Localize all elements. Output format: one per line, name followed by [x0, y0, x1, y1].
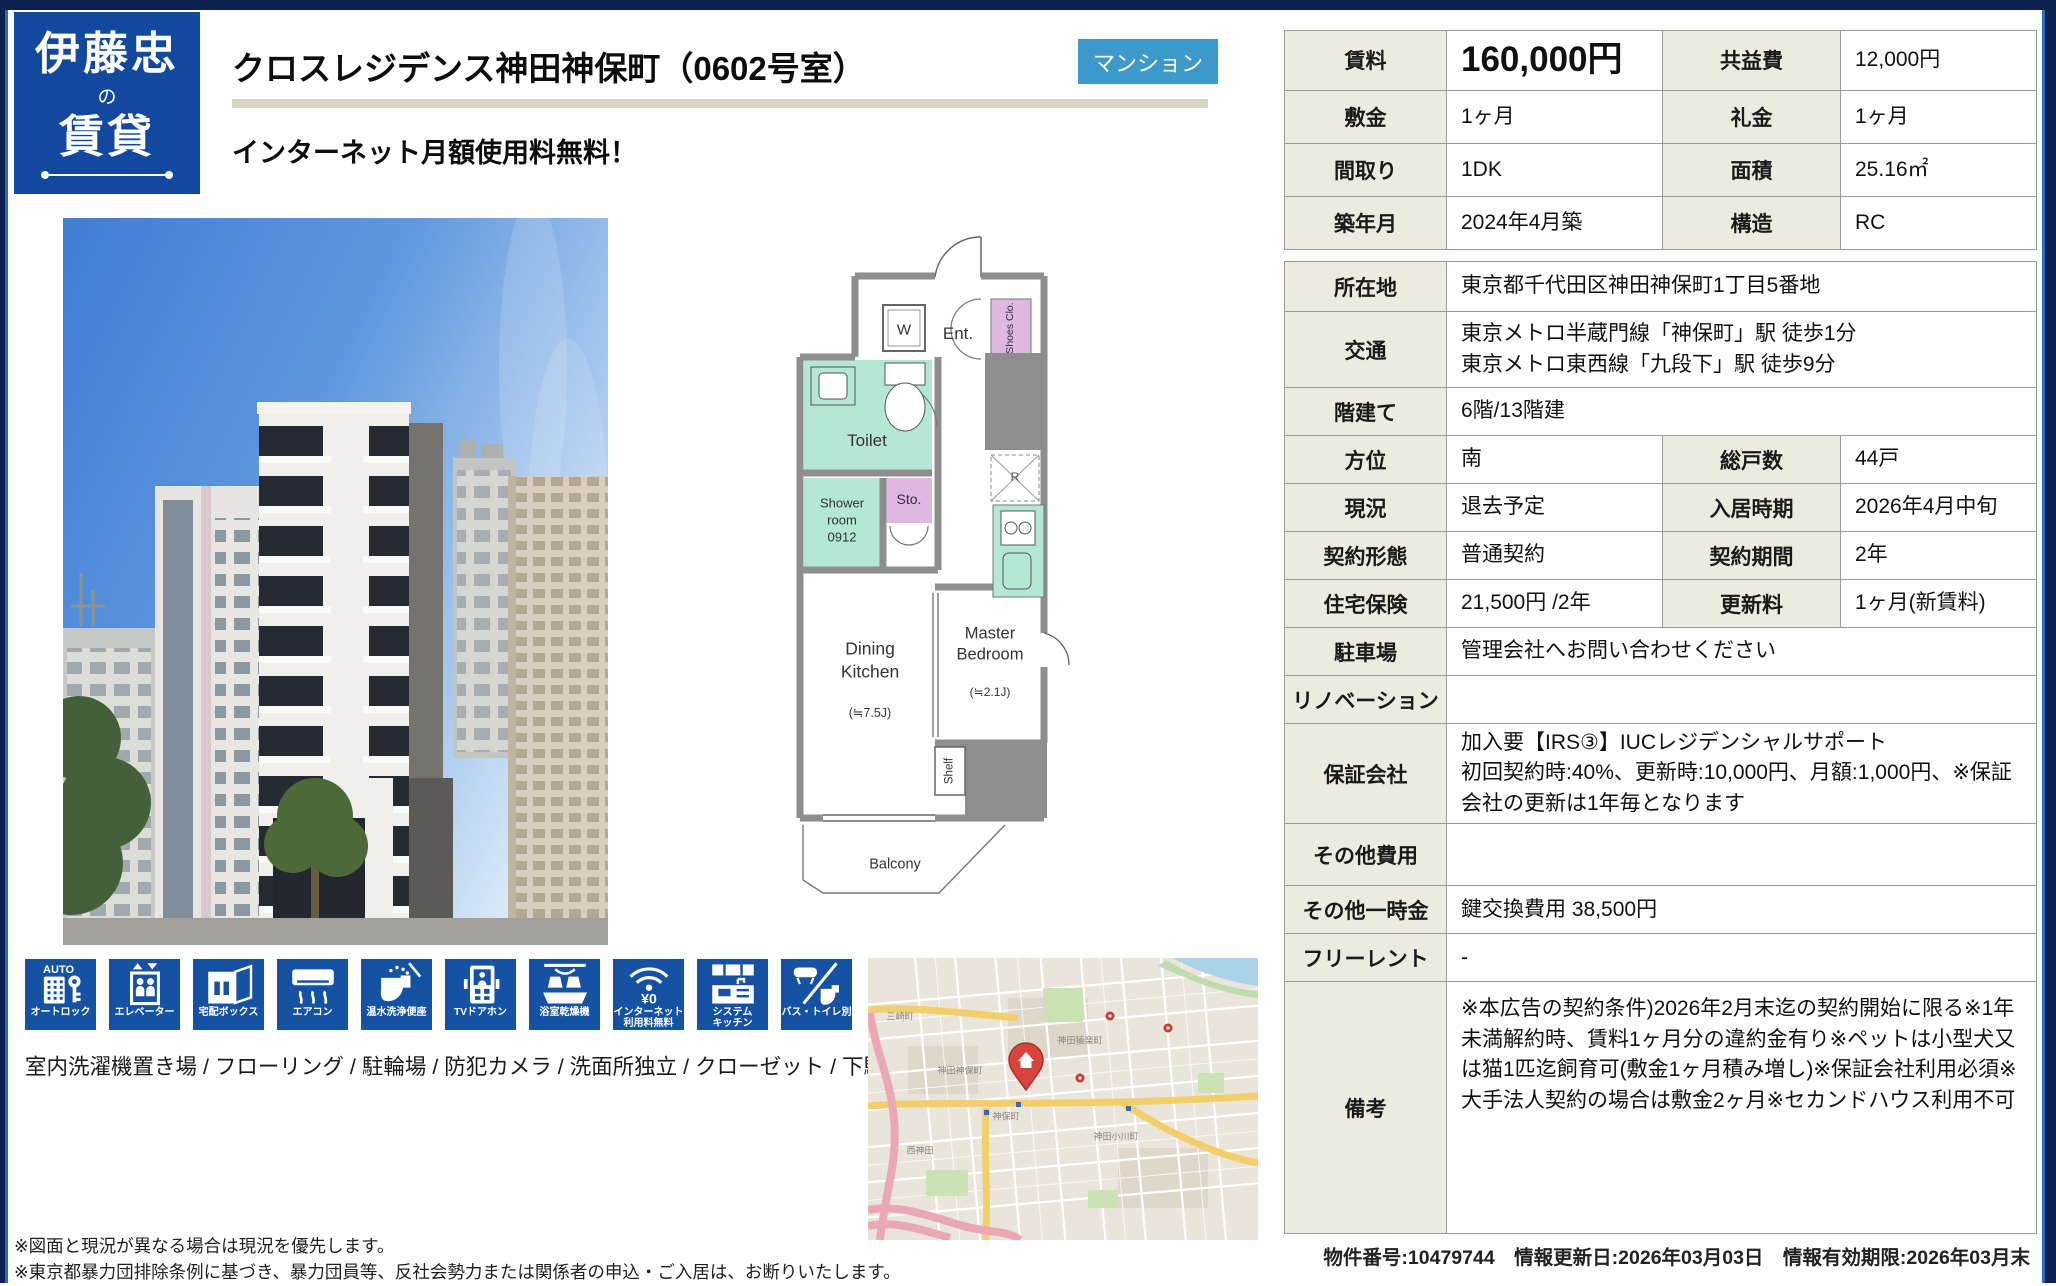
table-value-cell — [1447, 824, 2037, 886]
table-label-cell: 礼金 — [1663, 90, 1841, 143]
table-value-cell: 6階/13階建 — [1447, 388, 2037, 436]
floorplan-label-storage: Sto. — [897, 490, 922, 508]
table-row: その他一時金鍵交換費用 38,500円 — [1285, 886, 2037, 934]
table-value-cell: 東京メトロ半蔵門線「神保町」駅 徒歩1分 東京メトロ東西線「九段下」駅 徒歩9分 — [1447, 312, 2037, 388]
table-value-cell: 44戸 — [1841, 436, 2037, 484]
floorplan-label-bedroom-size: (≒2.1J) — [970, 685, 1011, 701]
table-label-cell: リノベーション — [1285, 676, 1447, 724]
feature-tile-bathroom-dryer: 浴室乾燥機 — [529, 959, 600, 1030]
table-value-cell: 退去予定 — [1447, 484, 1663, 532]
feature-label: エアコン — [293, 1007, 333, 1018]
table-row: 現況退去予定入居時期2026年4月中旬 — [1285, 484, 2037, 532]
table-row: 備考※本広告の契約条件)2026年2月末迄の契約開始に限る※1年未満解約時、賃料… — [1285, 982, 2037, 1234]
table-value-cell: 2年 — [1841, 532, 2037, 580]
table-row: 所在地東京都千代田区神田神保町1丁目5番地 — [1285, 262, 2037, 312]
table-row: 契約形態普通契約契約期間2年 — [1285, 532, 2037, 580]
page-frame-right-accent — [2042, 10, 2045, 1283]
floorplan-label-dk-size: (≒7.5J) — [849, 705, 891, 721]
disclaimer-notes: ※図面と現況が異なる場合は現況を優先します。 ※東京都暴力団排除条例に基づき、暴… — [14, 1233, 901, 1286]
table-label-cell: 総戸数 — [1663, 436, 1841, 484]
building-photo — [63, 218, 608, 945]
feature-label: TVドアホン — [454, 1007, 507, 1018]
separate-bath-toilet-icon — [786, 962, 848, 1006]
feature-tile-system-kitchen: システム キッチン — [697, 959, 768, 1030]
table-label-cell: 契約形態 — [1285, 532, 1447, 580]
feature-label: バス・トイレ別 — [782, 1007, 852, 1018]
table-label-cell: 面積 — [1663, 143, 1841, 196]
feature-tiles: AUTO オートロック エレベーター 宅配ボックス — [25, 959, 852, 1030]
tv-doorphone-icon — [450, 962, 512, 1006]
logo-line2: 賃貸 — [59, 113, 155, 160]
table-label-cell: 賃料 — [1285, 31, 1447, 91]
table-label-cell: 更新料 — [1663, 580, 1841, 628]
summary-table: 賃料160,000円共益費12,000円敷金1ヶ月礼金1ヶ月間取り1DK面積25… — [1284, 30, 2037, 250]
table-row: 敷金1ヶ月礼金1ヶ月 — [1285, 90, 2037, 143]
catch-copy: インターネット月額使用料無料！ — [232, 131, 637, 170]
table-row: 方位南総戸数44戸 — [1285, 436, 2037, 484]
table-label-cell: その他費用 — [1285, 824, 1447, 886]
floorplan-label-ent: Ent. — [943, 323, 973, 345]
washlet-icon — [366, 962, 428, 1006]
feature-tile-elevator: エレベーター — [109, 959, 180, 1030]
feature-label: インターネット 利用料無料 — [614, 1007, 684, 1029]
floorplan-label-master-bedroom: Master Bedroom — [957, 624, 1024, 667]
floorplan-label-shoes-closet: Shoes Clo. — [1004, 302, 1018, 353]
table-label-cell: 現況 — [1285, 484, 1447, 532]
floorplan-label-balcony: Balcony — [869, 856, 921, 875]
itochu-rental-logo: 伊藤忠 の 賃貸 — [14, 12, 200, 194]
table-row: その他費用 — [1285, 824, 2037, 886]
table-label-cell: 駐車場 — [1285, 628, 1447, 676]
table-row: 駐車場管理会社へお問い合わせください — [1285, 628, 2037, 676]
free-internet-icon: ¥0 — [618, 962, 680, 1006]
table-label-cell: 所在地 — [1285, 262, 1447, 312]
table-value-cell: 鍵交換費用 38,500円 — [1447, 886, 2037, 934]
floorplan-label-shower-room: Shower room 0912 — [820, 496, 864, 547]
page-frame-left-accent — [5, 10, 8, 1283]
map-label-kanda-ogawamachi: 神田小川町 — [1093, 1130, 1138, 1143]
table-label-cell: 間取り — [1285, 143, 1447, 196]
location-map: 三崎町 神田猿楽町 神田神保町 神保町 西神田 神田小川町 — [868, 958, 1258, 1240]
page-frame-right — [2045, 0, 2056, 1283]
delivery-box-icon — [198, 962, 260, 1006]
floorplan-label-shelf: Shelf — [943, 758, 958, 784]
property-meta: 物件番号:10479744 情報更新日:2026年03月03日 情報有効期限:2… — [1323, 1241, 2030, 1270]
table-value-cell: 160,000円 — [1447, 31, 1663, 91]
table-label-cell: 構造 — [1663, 196, 1841, 249]
table-value-cell: 加入要【IRS③】IUCレジデンシャルサポート 初回契約時:40%、更新時:10… — [1447, 724, 2037, 824]
table-value-cell: 1ヶ月(新賃料) — [1841, 580, 2037, 628]
autolock-icon: AUTO — [30, 962, 92, 1006]
table-row: 交通東京メトロ半蔵門線「神保町」駅 徒歩1分 東京メトロ東西線「九段下」駅 徒歩… — [1285, 312, 2037, 388]
feature-tile-delivery-box: 宅配ボックス — [193, 959, 264, 1030]
table-label-cell: 住宅保険 — [1285, 580, 1447, 628]
table-label-cell: 方位 — [1285, 436, 1447, 484]
table-value-cell: 普通契約 — [1447, 532, 1663, 580]
table-label-cell: 共益費 — [1663, 31, 1841, 91]
detail-table: 所在地東京都千代田区神田神保町1丁目5番地交通東京メトロ半蔵門線「神保町」駅 徒… — [1284, 261, 2037, 1234]
logo-line1: 伊藤忠 — [35, 30, 179, 77]
table-value-cell: 東京都千代田区神田神保町1丁目5番地 — [1447, 262, 2037, 312]
table-label-cell: 交通 — [1285, 312, 1447, 388]
table-row: 保証会社加入要【IRS③】IUCレジデンシャルサポート 初回契約時:40%、更新… — [1285, 724, 2037, 824]
page-frame-top — [0, 0, 2056, 10]
table-value-cell: 南 — [1447, 436, 1663, 484]
feature-label: エレベーター — [115, 1007, 175, 1018]
feature-label: 宅配ボックス — [199, 1007, 259, 1018]
location-map-image — [868, 958, 1258, 1240]
map-label-jimbocho: 神保町 — [992, 1110, 1019, 1123]
table-label-cell: フリーレント — [1285, 934, 1447, 982]
table-label-cell: 敷金 — [1285, 90, 1447, 143]
table-label-cell: 築年月 — [1285, 196, 1447, 249]
title-divider — [232, 99, 1208, 108]
table-row: 間取り1DK面積25.16㎡ — [1285, 143, 2037, 196]
feature-tile-aircon: エアコン — [277, 959, 348, 1030]
table-value-cell: 21,500円 /2年 — [1447, 580, 1663, 628]
table-label-cell: 備考 — [1285, 982, 1447, 1234]
table-value-cell: 1DK — [1447, 143, 1663, 196]
feature-label: オートロック — [31, 1007, 91, 1018]
feature-tile-separate-bath-toilet: バス・トイレ別 — [781, 959, 852, 1030]
map-label-kanda-jimbocho: 神田神保町 — [937, 1064, 982, 1077]
table-label-cell: 契約期間 — [1663, 532, 1841, 580]
table-value-cell — [1447, 676, 2037, 724]
svg-text:¥0: ¥0 — [641, 991, 657, 1006]
logo-particle: の — [97, 82, 116, 109]
table-value-cell: 管理会社へお問い合わせください — [1447, 628, 2037, 676]
table-row: フリーレント- — [1285, 934, 2037, 982]
table-row: 階建て6階/13階建 — [1285, 388, 2037, 436]
map-label-nishikanda: 西神田 — [906, 1144, 933, 1157]
svg-text:AUTO: AUTO — [43, 964, 74, 976]
feature-tile-free-internet: ¥0 インターネット 利用料無料 — [613, 959, 684, 1030]
floorplan-label-fridge: R — [1011, 470, 1020, 486]
floorplan-label-toilet: Toilet — [847, 430, 887, 452]
table-value-cell: RC — [1841, 196, 2037, 249]
page-title: クロスレジデンス神田神保町（0602号室） — [232, 42, 866, 90]
aircon-icon — [282, 962, 344, 1006]
disclaimer-line-1: ※図面と現況が異なる場合は現況を優先します。 — [14, 1233, 901, 1259]
table-label-cell: その他一時金 — [1285, 886, 1447, 934]
table-value-cell: 12,000円 — [1841, 31, 2037, 91]
system-kitchen-icon — [702, 962, 764, 1006]
table-row: 賃料160,000円共益費12,000円 — [1285, 31, 2037, 91]
table-value-cell: 1ヶ月 — [1841, 90, 2037, 143]
floorplan: W Ent. Shoes Clo. Toilet Shower room 091… — [795, 235, 1070, 935]
floorplan-label-w: W — [897, 320, 911, 340]
table-value-cell: ※本広告の契約条件)2026年2月末迄の契約開始に限る※1年未満解約時、賃料1ヶ… — [1447, 982, 2037, 1234]
table-row: リノベーション — [1285, 676, 2037, 724]
disclaimer-line-2: ※東京都暴力団排除条例に基づき、暴力団員等、反社会勢力または関係者の申込・ご入居… — [14, 1259, 901, 1285]
elevator-icon — [114, 962, 176, 1006]
feature-label: 温水洗浄便座 — [367, 1007, 427, 1018]
table-value-cell: 1ヶ月 — [1447, 90, 1663, 143]
feature-label: 浴室乾燥機 — [540, 1007, 590, 1018]
property-type-badge: マンション — [1078, 39, 1218, 84]
table-value-cell: 2026年4月中旬 — [1841, 484, 2037, 532]
feature-tile-autolock: AUTO オートロック — [25, 959, 96, 1030]
table-value-cell: - — [1447, 934, 2037, 982]
floorplan-drawing — [795, 235, 1070, 935]
feature-tile-tv-doorphone: TVドアホン — [445, 959, 516, 1030]
table-label-cell: 入居時期 — [1663, 484, 1841, 532]
table-value-cell: 2024年4月築 — [1447, 196, 1663, 249]
feature-tile-washlet: 温水洗浄便座 — [361, 959, 432, 1030]
table-label-cell: 階建て — [1285, 388, 1447, 436]
table-row: 住宅保険21,500円 /2年更新料1ヶ月(新賃料) — [1285, 580, 2037, 628]
map-label-sarugakucho: 神田猿楽町 — [1057, 1034, 1102, 1047]
amenities-text: 室内洗濯機置き場 / フローリング / 駐輪場 / 防犯カメラ / 洗面所独立 … — [25, 1050, 907, 1081]
map-label-misakicho: 三崎町 — [886, 1010, 913, 1023]
table-row: 築年月2024年4月築構造RC — [1285, 196, 2037, 249]
building-photo-image — [63, 218, 608, 945]
table-label-cell: 保証会社 — [1285, 724, 1447, 824]
logo-underline — [45, 174, 169, 176]
table-value-cell: 25.16㎡ — [1841, 143, 2037, 196]
floorplan-label-dining-kitchen: Dining Kitchen — [841, 637, 899, 683]
bathroom-dryer-icon — [534, 962, 596, 1006]
feature-label: システム キッチン — [713, 1007, 753, 1029]
